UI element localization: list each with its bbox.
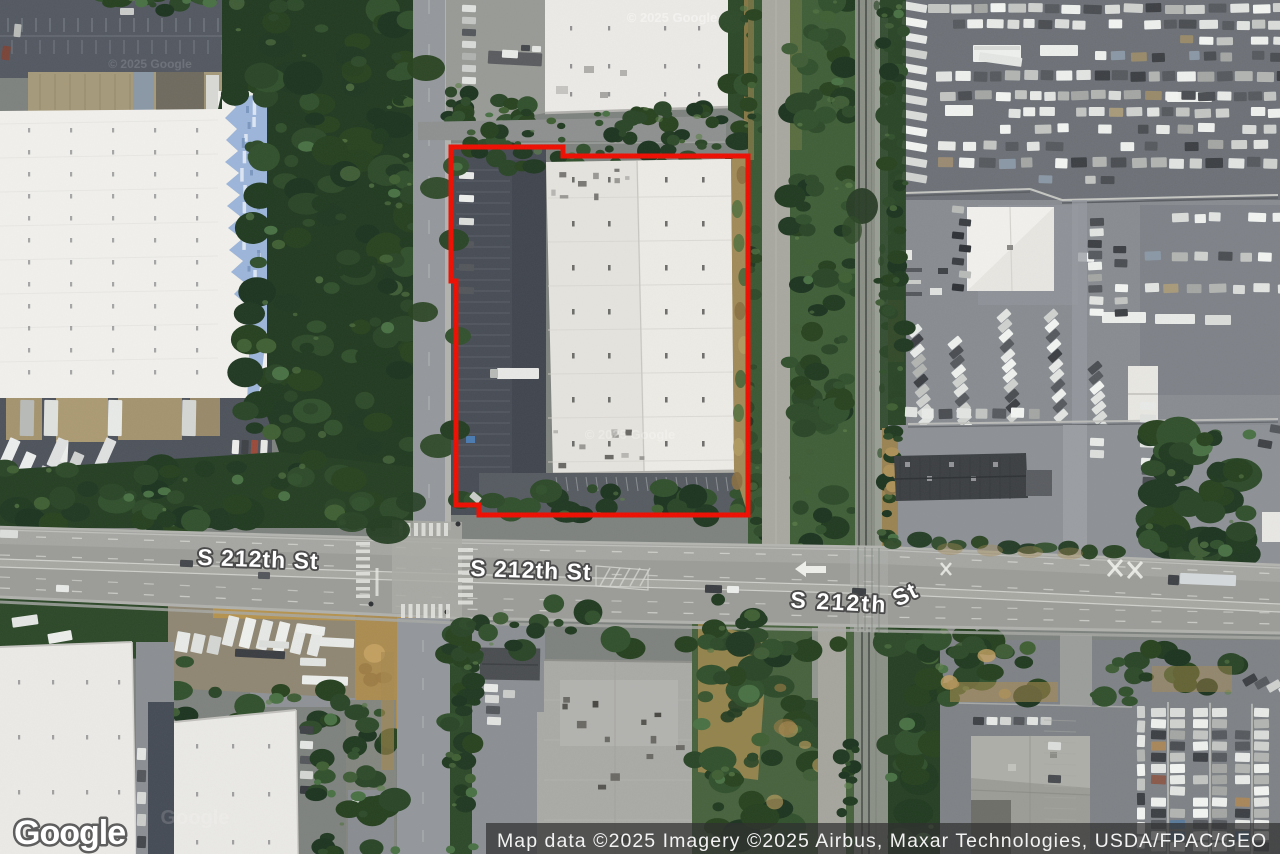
svg-text:© 2025 Google: © 2025 Google xyxy=(585,427,676,442)
svg-text:S 212th St: S 212th St xyxy=(470,555,592,585)
svg-text:Google: Google xyxy=(161,807,230,829)
svg-text:Google: Google xyxy=(14,814,125,852)
svg-text:© 2025 Google: © 2025 Google xyxy=(627,10,718,25)
svg-text:S 212th: S 212th xyxy=(790,586,888,617)
svg-text:S 212th St: S 212th St xyxy=(197,544,319,574)
svg-text:Map data ©2025 Imagery ©2025 A: Map data ©2025 Imagery ©2025 Airbus, Max… xyxy=(497,830,1267,852)
svg-text:© 2025 Google: © 2025 Google xyxy=(108,57,192,71)
